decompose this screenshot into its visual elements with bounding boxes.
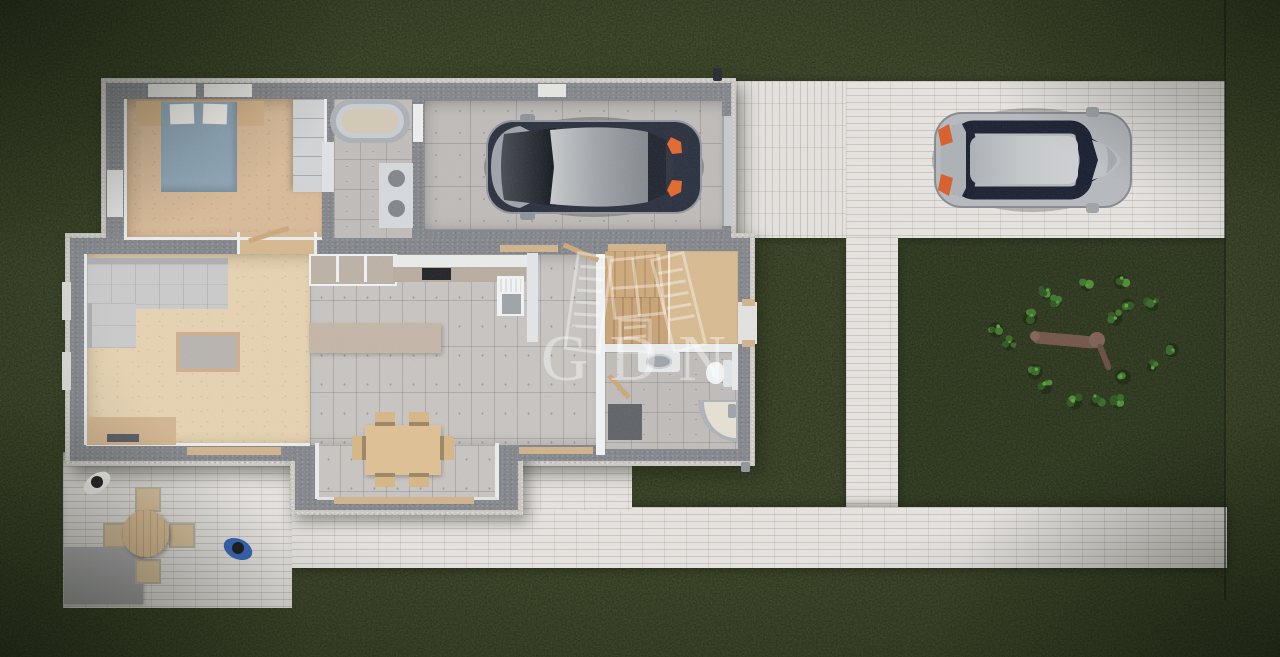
svg-text:GDN: GDN xyxy=(541,322,747,395)
